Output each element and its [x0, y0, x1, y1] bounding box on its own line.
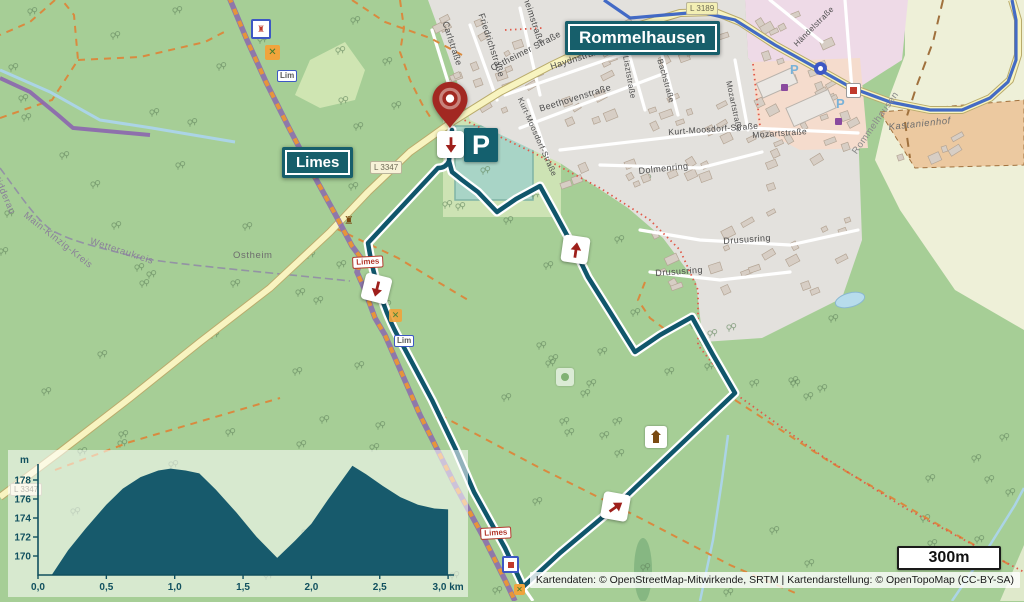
place-label-ostheim: Ostheim: [233, 250, 273, 261]
supermarket-icon: [781, 84, 788, 91]
svg-text:3,0 km: 3,0 km: [433, 582, 464, 593]
svg-text:1,5: 1,5: [236, 582, 250, 593]
limes-name-text: Limes: [285, 150, 350, 175]
svg-text:174: 174: [14, 514, 31, 525]
lim-trail-badge: Lim: [394, 335, 414, 347]
map-attribution: Kartendaten: © OpenStreetMap-Mitwirkende…: [530, 572, 1020, 588]
town-name-plate: Rommelhausen: [565, 21, 720, 55]
elevation-profile-chart: 1701721741761780,00,51,01,52,02,53,0 kmm: [8, 450, 468, 597]
limes-cross-icon: ✕: [389, 309, 402, 322]
limes-cross-icon: ✕: [514, 584, 525, 595]
start-pin-marker[interactable]: [431, 81, 469, 129]
svg-text:0,5: 0,5: [99, 582, 113, 593]
memorial-icon: [846, 83, 861, 98]
limes-tower-icon: ♜: [251, 19, 271, 39]
svg-text:2,0: 2,0: [304, 582, 318, 593]
parking-marker[interactable]: P: [464, 128, 498, 162]
limes-name-plate: Limes: [282, 147, 353, 178]
route-arrow-northeast: [600, 491, 631, 522]
wayside-shrine-icon: [645, 426, 667, 448]
tower-ruin-icon: ♜: [344, 214, 354, 227]
picnic-icon: [556, 368, 574, 386]
cycle-node-icon: [814, 62, 827, 75]
svg-text:2,5: 2,5: [373, 582, 387, 593]
limes-cross-icon: ✕: [265, 45, 280, 60]
town-name-text: Rommelhausen: [568, 24, 717, 52]
parking-small-label: P: [790, 62, 799, 77]
limes-trail-badge: Limes: [352, 255, 384, 269]
svg-text:170: 170: [14, 552, 31, 563]
svg-text:178: 178: [14, 476, 31, 487]
limes-trail-badge: Limes: [480, 526, 512, 540]
svg-text:172: 172: [14, 533, 31, 544]
route-arrow-down: [437, 131, 464, 158]
road-badge-l3347: L 3347: [370, 161, 402, 174]
map-scale-bar: 300m: [897, 546, 1001, 570]
route-arrow-up: [560, 234, 590, 264]
parking-small-label: P: [836, 96, 845, 111]
svg-text:1,0: 1,0: [168, 582, 182, 593]
road-badge-l3189: L 3189: [686, 2, 718, 15]
supermarket-icon: [835, 118, 842, 125]
svg-text:m: m: [20, 455, 29, 466]
svg-text:176: 176: [14, 495, 31, 506]
svg-text:0,0: 0,0: [31, 582, 45, 593]
limes-marker-icon: [502, 556, 519, 573]
lim-trail-badge: Lim: [277, 70, 297, 82]
